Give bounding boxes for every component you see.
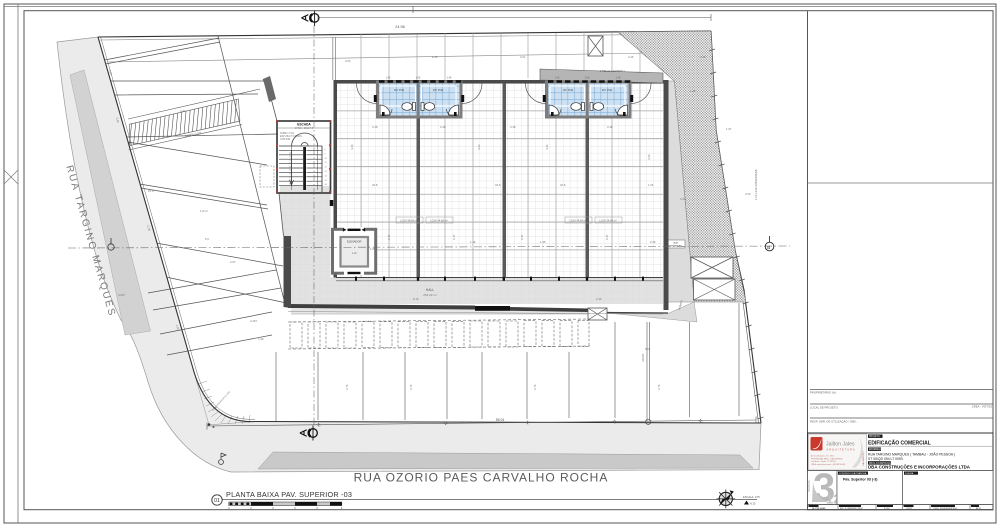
svg-text:1.48: 1.48 [555, 78, 560, 80]
svg-text:B: B [767, 245, 770, 250]
svg-text:FIGURA: FIGURA [905, 472, 914, 475]
svg-text:1.39: 1.39 [258, 337, 264, 341]
svg-text:2.25: 2.25 [628, 55, 634, 59]
svg-text:CAU A58735-7: CAU A58735-7 [862, 451, 865, 466]
svg-text:4.997: 4.997 [118, 293, 125, 297]
svg-text:PLANTA BAIXA PAV. SUPERIOR -03: PLANTA BAIXA PAV. SUPERIOR -03 [226, 490, 352, 499]
svg-text:1.48: 1.48 [386, 78, 391, 80]
svg-text:1.10: 1.10 [352, 252, 357, 255]
svg-text:2.08: 2.08 [416, 78, 421, 80]
svg-text:ARQUITETURA: ARQUITETURA [827, 448, 856, 451]
svg-text:5.04: 5.04 [645, 347, 651, 351]
svg-text:2.38: 2.38 [700, 55, 706, 59]
svg-text:3.03: 3.03 [680, 197, 686, 201]
svg-text:1.48: 1.48 [447, 78, 452, 80]
svg-text:24.96: 24.96 [395, 25, 405, 29]
svg-text:WC PNE: WC PNE [394, 88, 405, 92]
svg-text:ENDEREÇO:: ENDEREÇO: [869, 449, 883, 451]
svg-text:DBA CONSTRUÇÕES E INCORPORAÇÕE: DBA CONSTRUÇÕES E INCORPORAÇÕES LTDA [868, 465, 971, 470]
svg-text:LOCAL DE PROJETO:: LOCAL DE PROJETO: [810, 405, 839, 409]
svg-text:34.8: 34.8 [560, 183, 566, 187]
svg-text:LOJA 34,69 m²: LOJA 34,69 m² [599, 218, 616, 222]
svg-text:1.95: 1.95 [540, 240, 546, 244]
svg-text:PRANCHA: PRANCHA [808, 480, 811, 492]
svg-text:1.06 LAJE IMPERMEAB.: 1.06 LAJE IMPERMEAB. [754, 169, 758, 200]
svg-text:JUN/19: JUN/19 [906, 508, 912, 510]
svg-text:6.47: 6.47 [605, 234, 609, 240]
svg-text:LAJE: LAJE [673, 241, 679, 244]
svg-text:4.497: 4.497 [250, 319, 257, 323]
svg-text:RUA OZORIO PAES CARVALHO ROC: RUA OZORIO PAES CARVALHO ROCHA [354, 471, 609, 485]
svg-text:José Brasil - Tambú - TE 5837-: José Brasil - Tambú - TE 5837-70 [811, 460, 836, 463]
svg-text:CONTEÚDO DA PRANCHA: CONTEÚDO DA PRANCHA [839, 472, 867, 475]
svg-text:1 TELHA ( EXTENS ): 1 TELHA ( EXTENS ) [600, 69, 625, 73]
svg-text:4.44: 4.44 [180, 109, 186, 113]
svg-text:4.44: 4.44 [477, 144, 481, 150]
svg-text:RESP. OBR. DE UTILIZAÇÃO / OBS: RESP. OBR. DE UTILIZAÇÃO / OBS.: [810, 418, 858, 423]
svg-text:RUA TARGINO MARQUES ( TAMBAU -: RUA TARGINO MARQUES ( TAMBAU - JOÃO PESS… [868, 451, 955, 456]
svg-text:LOJA 34,69 m²: LOJA 34,69 m² [569, 218, 586, 222]
svg-text:ST 05/QD 094 LT 0093: ST 05/QD 094 LT 0093 [868, 457, 903, 461]
svg-text:RAMPA: RAMPA [642, 353, 645, 362]
svg-text:4.44: 4.44 [350, 144, 354, 150]
svg-text:2.46: 2.46 [596, 297, 602, 301]
svg-text:15.0: 15.0 [148, 189, 154, 193]
svg-text:2.76: 2.76 [657, 384, 661, 390]
svg-text:Pav. Superior 03 (-3): Pav. Superior 03 (-3) [843, 478, 878, 482]
svg-text:S/ ESC: S/ ESC [884, 508, 891, 510]
svg-text:252,23 m²: 252,23 m² [423, 293, 437, 297]
svg-text:3.48: 3.48 [372, 125, 378, 129]
svg-text:PROPRIETÁRIO (A):: PROPRIETÁRIO (A): [810, 390, 837, 394]
svg-text:01: 01 [214, 498, 220, 504]
svg-text:EDIFICAÇÃO COMERCIAL: EDIFICAÇÃO COMERCIAL [868, 440, 931, 447]
svg-text:34.8: 34.8 [495, 183, 501, 187]
svg-text:1.48: 1.48 [616, 78, 621, 80]
svg-text:6.47: 6.47 [452, 234, 456, 240]
svg-text:2.08: 2.08 [585, 78, 590, 80]
svg-text:6.47: 6.47 [520, 234, 524, 240]
svg-text:3.73: 3.73 [409, 384, 413, 390]
svg-text:ELEVADOR: ELEVADOR [347, 240, 361, 244]
svg-text:2.76: 2.76 [345, 384, 349, 390]
svg-text:HALL: HALL [426, 288, 435, 292]
svg-text:1.46: 1.46 [470, 240, 476, 244]
svg-text:03-12: 03-12 [976, 508, 981, 510]
svg-text:Av. Rua Bancários - ST - 58.75: Av. Rua Bancários - ST - 58.75 [811, 455, 834, 458]
svg-text:4.44: 4.44 [647, 154, 651, 160]
svg-text:3.21: 3.21 [520, 55, 526, 59]
svg-text:2.03: 2.03 [745, 192, 751, 196]
svg-text:N 25: N 25 [750, 502, 756, 506]
svg-text:COR IND.: COR IND. [280, 138, 291, 141]
svg-text:ESCADA: ESCADA [297, 123, 311, 127]
svg-text:CLAUD. ENGENHEIRA RESP.: CLAUD. ENGENHEIRA RESP. [933, 507, 958, 510]
svg-text:1.8 m³: 1.8 m³ [200, 209, 208, 213]
svg-text:PROJETO:: PROJETO: [869, 436, 881, 438]
svg-text:ESCALA: 1/75: ESCALA: 1/75 [743, 495, 760, 499]
svg-text:5.0: 5.0 [205, 237, 209, 241]
svg-text:2.76: 2.76 [533, 384, 537, 390]
svg-text:WC PNE: WC PNE [433, 88, 444, 92]
svg-text:LOJA 34,69 m²: LOJA 34,69 m² [400, 218, 417, 222]
svg-text:55.04: 55.04 [496, 418, 505, 422]
svg-text:34.8: 34.8 [372, 183, 378, 187]
svg-text:WC PNE: WC PNE [602, 88, 613, 92]
svg-text:2.38: 2.38 [432, 55, 438, 59]
svg-text:1.06: 1.06 [648, 183, 654, 187]
svg-text:IMPERMEAB.: IMPERMEAB. [669, 244, 683, 247]
svg-text:LOJA 34,69 m²: LOJA 34,69 m² [430, 218, 447, 222]
svg-text:3.48: 3.48 [440, 125, 446, 129]
svg-text:PROFISSIONAL RESP. - JOÃO PESS: PROFISSIONAL RESP. - JOÃO PESSOA [811, 457, 843, 460]
svg-text:1.80: 1.80 [370, 247, 376, 251]
svg-text:ARQ. E URBANISMO RESP.: ARQ. E URBANISMO RESP. [840, 507, 864, 510]
svg-text:8.16: 8.16 [413, 297, 419, 301]
svg-text:CREA - VISTOS: CREA - VISTOS [972, 405, 992, 409]
svg-text:Jailton Jales: Jailton Jales [826, 441, 855, 447]
svg-text:4.44: 4.44 [545, 144, 549, 150]
svg-text:2.97: 2.97 [230, 260, 236, 264]
svg-text:JA. TON JALES: JA. TON JALES [812, 507, 826, 510]
svg-text:2.06: 2.06 [650, 240, 656, 244]
svg-text:1.38: 1.38 [690, 89, 696, 93]
svg-text:3.03: 3.03 [345, 59, 351, 63]
svg-text:6.47: 6.47 [387, 234, 391, 240]
svg-text:WC PNE: WC PNE [563, 88, 574, 92]
svg-text:3.48: 3.48 [510, 125, 516, 129]
svg-text:1.97: 1.97 [726, 127, 732, 131]
svg-text:3.48: 3.48 [607, 125, 613, 129]
